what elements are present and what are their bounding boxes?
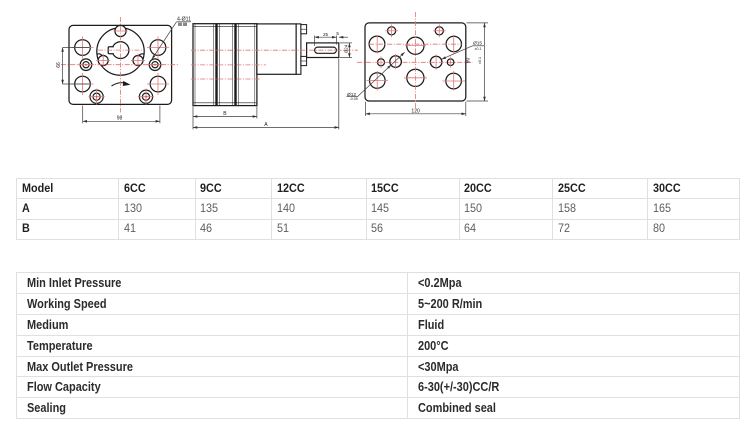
svg-text:90: 90 xyxy=(466,58,472,64)
svg-text:Ø15: Ø15 xyxy=(473,41,482,47)
svg-text:A: A xyxy=(264,122,268,128)
svg-text:98: 98 xyxy=(117,116,123,122)
svg-text:4-Ø11: 4-Ø11 xyxy=(177,17,191,23)
svg-text:120: 120 xyxy=(411,108,420,114)
svg-text:±0.1: ±0.1 xyxy=(478,57,482,64)
svg-text:±0.1: ±0.1 xyxy=(475,47,482,51)
svg-text:5: 5 xyxy=(336,31,339,36)
svg-text:66: 66 xyxy=(56,62,62,68)
svg-text:-0.05: -0.05 xyxy=(350,97,358,101)
svg-text:25: 25 xyxy=(323,32,329,37)
svg-text:Ø24: Ø24 xyxy=(343,44,348,53)
svg-text:B: B xyxy=(223,111,227,117)
